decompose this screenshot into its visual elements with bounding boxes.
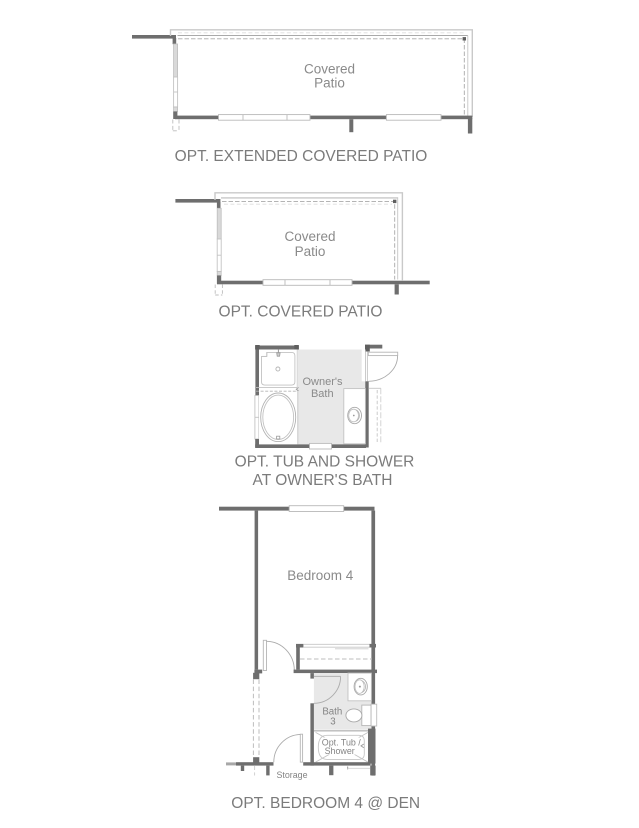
svg-text:Shower: Shower bbox=[325, 746, 355, 756]
svg-text:Storage: Storage bbox=[276, 770, 307, 780]
svg-text:Patio: Patio bbox=[314, 75, 345, 90]
svg-text:Patio: Patio bbox=[295, 244, 326, 259]
svg-text:Bedroom 4: Bedroom 4 bbox=[287, 568, 354, 583]
svg-text:OPT. EXTENDED COVERED PATIO: OPT. EXTENDED COVERED PATIO bbox=[175, 148, 428, 165]
svg-text:OPT. BEDROOM 4 @ DEN: OPT. BEDROOM 4 @ DEN bbox=[231, 795, 420, 812]
svg-text:OPT. COVERED PATIO: OPT. COVERED PATIO bbox=[219, 304, 383, 321]
svg-text:Owner's: Owner's bbox=[303, 376, 343, 388]
svg-text:Covered: Covered bbox=[284, 229, 335, 244]
svg-text:AT OWNER'S BATH: AT OWNER'S BATH bbox=[253, 472, 393, 489]
svg-text:Covered: Covered bbox=[304, 61, 355, 76]
svg-text:Bath: Bath bbox=[311, 388, 334, 400]
svg-text:3: 3 bbox=[330, 717, 335, 728]
svg-text:OPT. TUB AND SHOWER: OPT. TUB AND SHOWER bbox=[235, 454, 415, 471]
